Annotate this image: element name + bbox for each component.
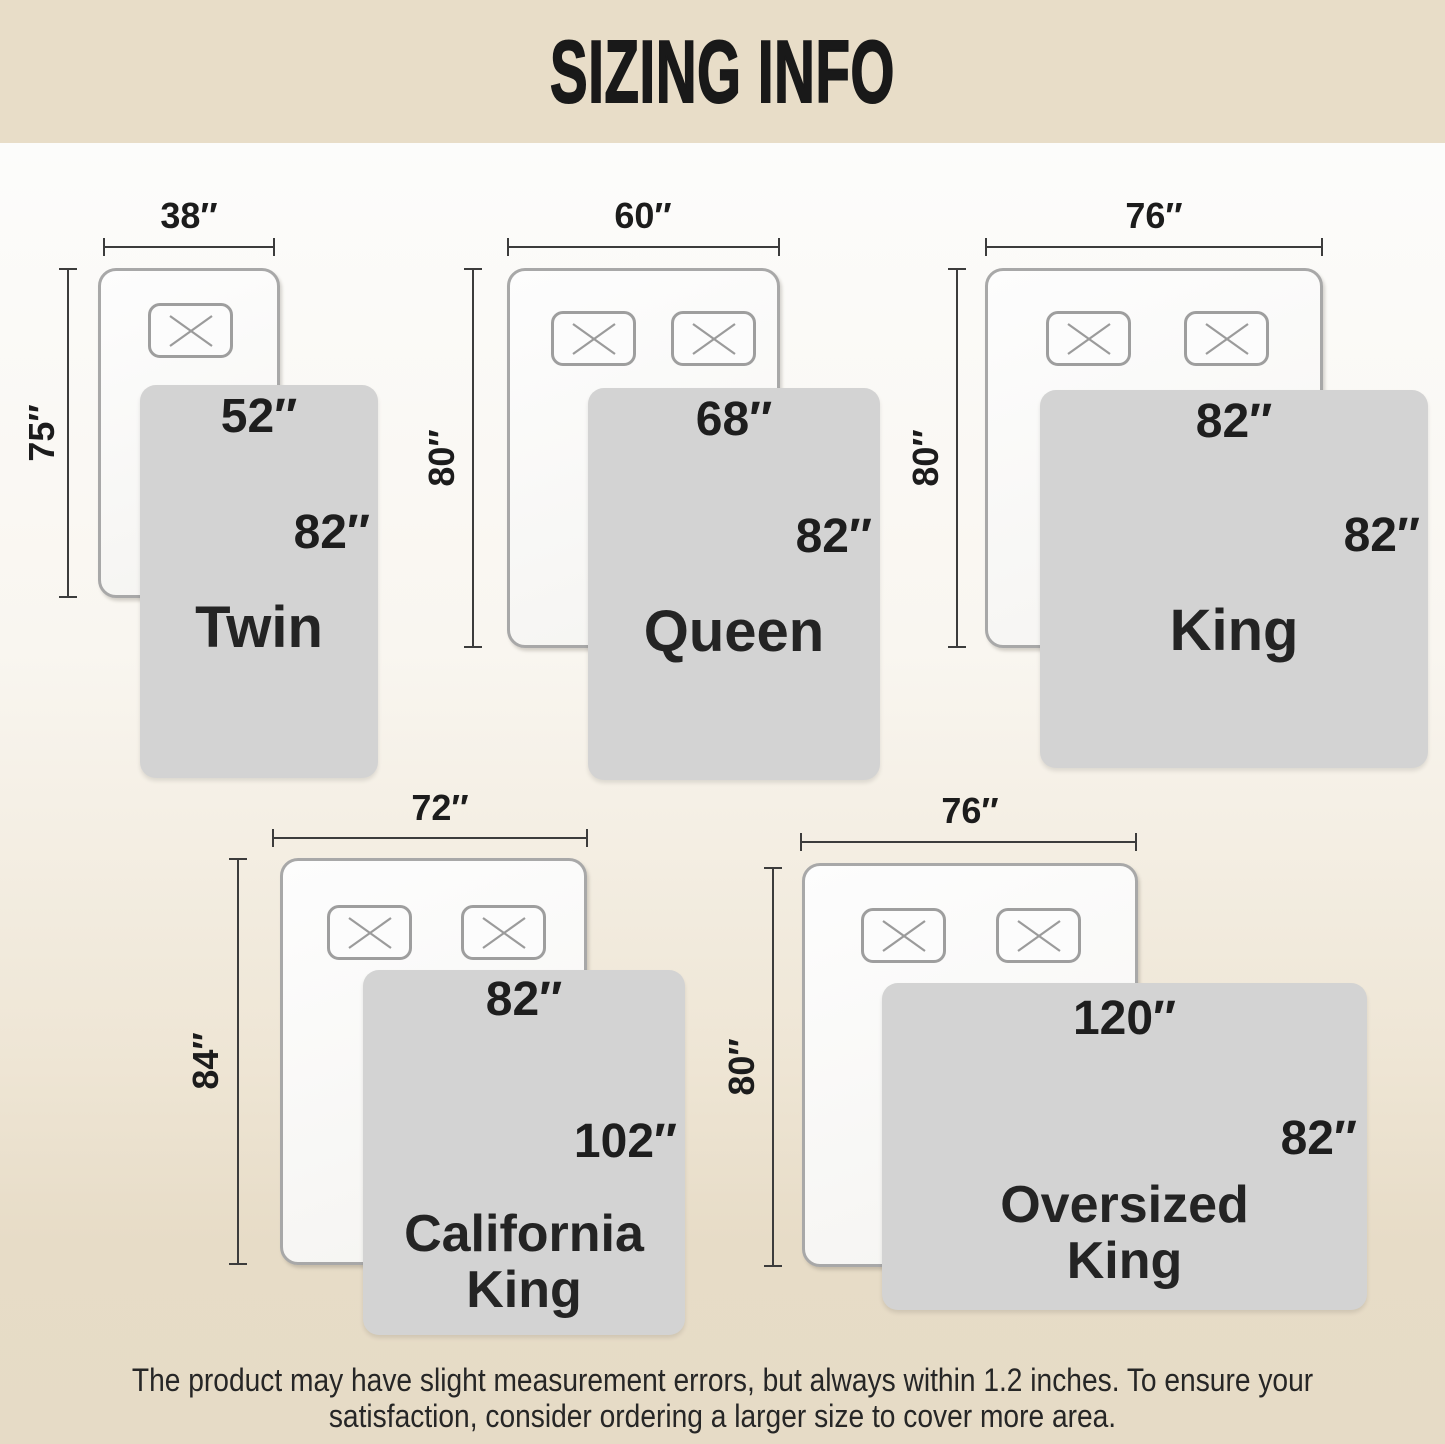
pillow <box>1046 311 1131 366</box>
bed-length-dimension-line <box>472 268 474 648</box>
size-name-label: King <box>1040 600 1428 663</box>
pillow <box>327 905 412 960</box>
blanket-length-label: 82″ <box>294 509 370 557</box>
blanket-length-label: 102″ <box>574 1118 677 1166</box>
blanket: 120″ 82″ OversizedKing <box>882 983 1367 1310</box>
pillow <box>671 311 756 366</box>
blanket-length-label: 82″ <box>1344 512 1420 560</box>
size-name-line2: King <box>1067 1232 1183 1290</box>
bed-width-dimension-label: 60″ <box>614 198 671 234</box>
bed-length-dimension-label: 75″ <box>24 388 60 478</box>
pillow-x-icon <box>879 918 929 954</box>
blanket-width-label: 82″ <box>486 976 562 1024</box>
bed-width-dimension-line <box>272 837 588 839</box>
pillow-x-icon <box>166 313 216 349</box>
pillow <box>148 303 233 358</box>
pillow-x-icon <box>1064 321 1114 357</box>
pillow-x-icon <box>1014 918 1064 954</box>
size-name-line1: California <box>404 1205 644 1263</box>
bed-width-dimension-label: 76″ <box>941 793 998 829</box>
pillow-x-icon <box>345 915 395 951</box>
pillow <box>461 905 546 960</box>
pillow <box>1184 311 1269 366</box>
bed-length-dimension-label: 80″ <box>724 1022 760 1112</box>
header-band: SIZING INFO <box>0 0 1445 143</box>
pillow-x-icon <box>689 321 739 357</box>
blanket-width-label: 52″ <box>221 393 297 441</box>
bed-length-dimension-label: 80″ <box>424 413 460 503</box>
blanket-length-label: 82″ <box>796 513 872 561</box>
blanket: 52″ 82″ Twin <box>140 385 378 778</box>
bed-width-dimension-line <box>507 246 780 248</box>
blanket: 82″ 102″ CaliforniaKing <box>363 970 685 1335</box>
bed-length-dimension-line <box>956 268 958 648</box>
footer-note-line1: The product may have slight measurement … <box>87 1364 1359 1396</box>
blanket-width-label: 120″ <box>1073 995 1176 1043</box>
bed-length-dimension-label: 84″ <box>188 1016 224 1106</box>
bed-width-dimension-label: 38″ <box>160 198 217 234</box>
bed-width-dimension-line <box>800 841 1137 843</box>
blanket-width-label: 68″ <box>696 396 772 444</box>
pillow-x-icon <box>479 915 529 951</box>
size-name-label: Queen <box>588 601 880 664</box>
size-name-line1: Oversized <box>1000 1176 1249 1234</box>
bed-length-dimension-line <box>237 858 239 1265</box>
bed-length-dimension-label: 80″ <box>908 413 944 503</box>
pillow-x-icon <box>1202 321 1252 357</box>
size-name-label: OversizedKing <box>882 1177 1367 1289</box>
size-name-line2: King <box>466 1261 582 1319</box>
page-title: SIZING INFO <box>550 21 895 123</box>
sizing-infographic: SIZING INFO 38″ 75″ 52″ 82″ Twin 60″ 80″ <box>0 0 1445 1444</box>
bed-length-dimension-line <box>67 268 69 598</box>
bed-width-dimension-line <box>985 246 1323 248</box>
footer-note-line2: satisfaction, consider ordering a larger… <box>87 1400 1359 1432</box>
bed-length-dimension-line <box>772 867 774 1267</box>
blanket: 68″ 82″ Queen <box>588 388 880 780</box>
pillow-x-icon <box>569 321 619 357</box>
bed-width-dimension-label: 76″ <box>1125 198 1182 234</box>
pillow <box>551 311 636 366</box>
size-name-label: Twin <box>140 597 378 660</box>
pillow <box>996 908 1081 963</box>
blanket: 82″ 82″ King <box>1040 390 1428 768</box>
bed-width-dimension-line <box>103 246 275 248</box>
blanket-length-label: 82″ <box>1281 1115 1357 1163</box>
size-name-label: CaliforniaKing <box>363 1206 685 1318</box>
pillow <box>861 908 946 963</box>
blanket-width-label: 82″ <box>1196 398 1272 446</box>
bed-width-dimension-label: 72″ <box>411 790 468 826</box>
